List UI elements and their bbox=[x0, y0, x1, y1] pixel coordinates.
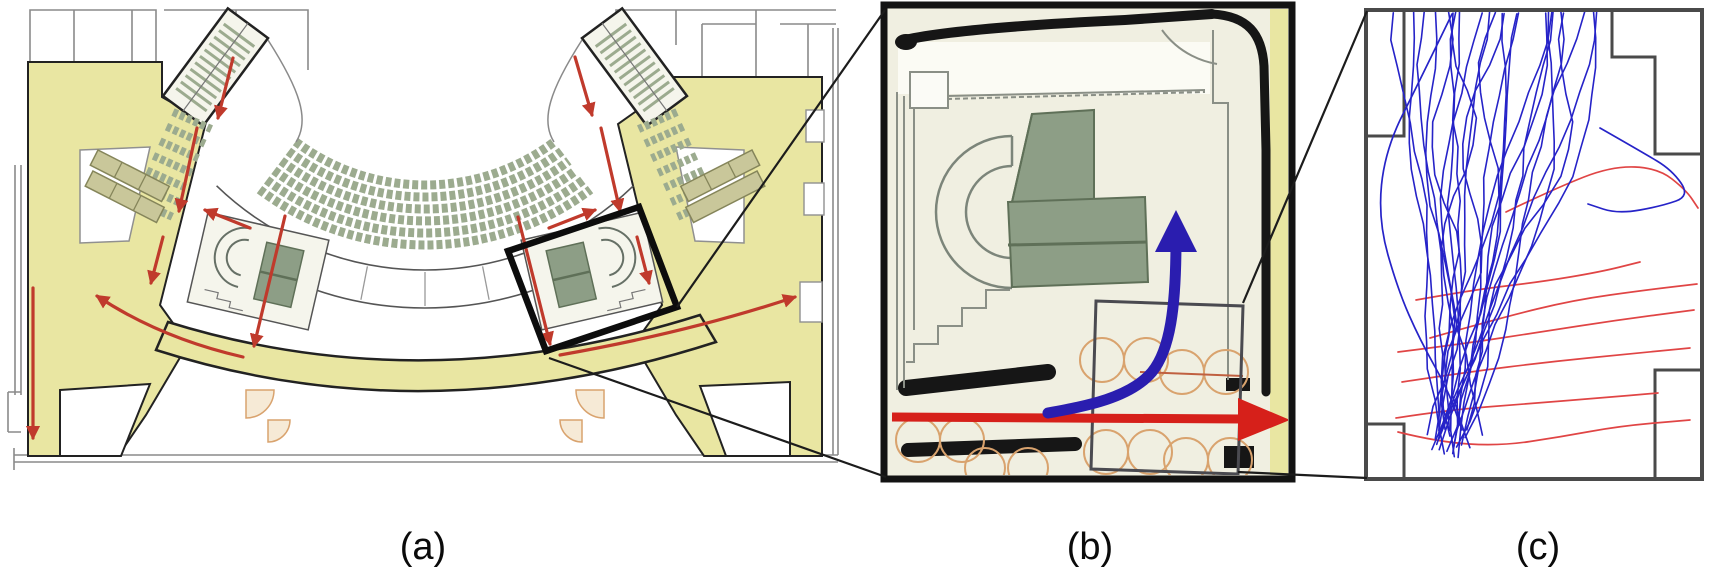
panel-b-stair-detail bbox=[884, 5, 1292, 488]
side-wing bbox=[163, 8, 268, 125]
egress-arrow bbox=[601, 128, 620, 211]
corridor-zones bbox=[28, 62, 824, 456]
figure: (a) (b) (c) bbox=[0, 0, 1720, 584]
door-swing-arcs bbox=[246, 390, 290, 442]
caption-b: (b) bbox=[1067, 526, 1113, 568]
wing-inner-wall bbox=[268, 40, 302, 142]
panel-c-trajectories bbox=[1366, 10, 1702, 479]
corridor-strip-yellow bbox=[1270, 9, 1290, 475]
room-notch bbox=[800, 282, 822, 322]
room-cut bbox=[60, 384, 150, 456]
seating-rows bbox=[260, 142, 591, 245]
egress-arrow bbox=[575, 57, 592, 115]
room-notch bbox=[806, 110, 824, 142]
panel-a-floorplan bbox=[8, 8, 838, 470]
caption-c: (c) bbox=[1516, 526, 1560, 568]
corridor-rear-band bbox=[156, 315, 716, 391]
stair-lobby bbox=[187, 212, 329, 330]
room-notch bbox=[804, 183, 824, 215]
caption-a: (a) bbox=[400, 526, 446, 568]
